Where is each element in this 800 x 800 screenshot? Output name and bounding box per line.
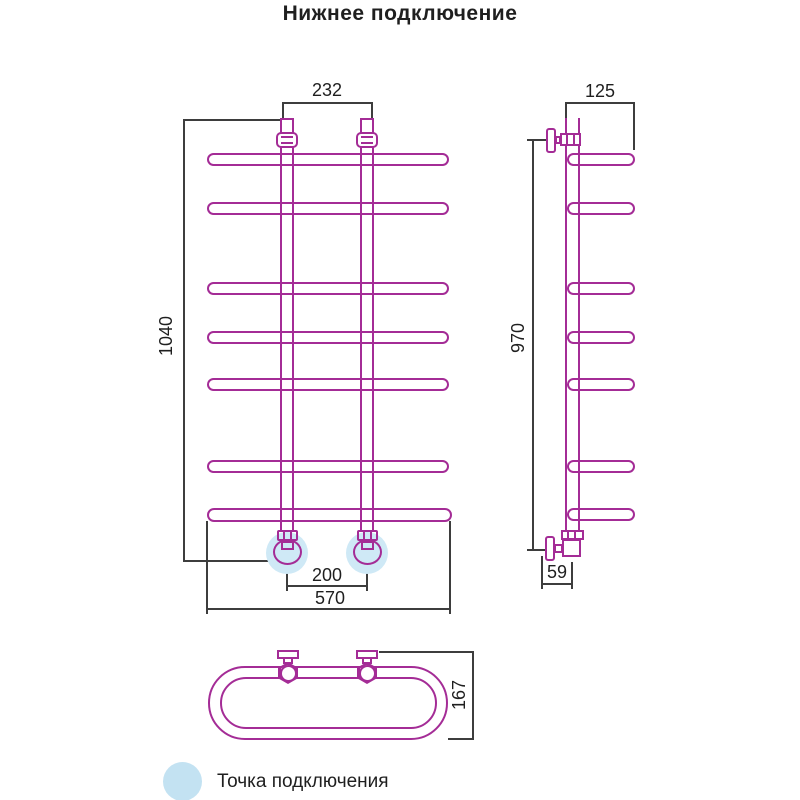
front-pipe-left — [292, 147, 294, 531]
dim-59-line — [541, 583, 573, 585]
dim-970-ext-top — [527, 139, 547, 141]
side-pipe — [578, 118, 580, 531]
front-valve-nut-right-face — [363, 532, 365, 539]
front-bar-bottom — [207, 508, 452, 522]
side-top-valve-nut — [560, 133, 581, 146]
front-bar — [207, 202, 449, 215]
side-bottom-valve-nut-face — [574, 532, 576, 538]
dim-570-ext-right — [449, 521, 451, 614]
dim-200-line — [287, 585, 367, 587]
side-bottom-valve-body — [562, 539, 581, 557]
front-valve-nut-left-face — [290, 532, 292, 539]
front-valve-ball-right-detail — [361, 541, 374, 550]
drawing-title: Нижнее подключение — [0, 2, 800, 26]
dim-1040-ext-top — [183, 119, 283, 121]
front-bar — [207, 282, 449, 295]
dim-167-label: 167 — [450, 678, 468, 712]
connection-point-marker — [163, 762, 202, 800]
dim-970-label: 970 — [509, 321, 527, 355]
dim-125-ext-right — [633, 102, 635, 150]
front-top-fitting-left-detail — [281, 136, 293, 144]
side-top-valve-nut-face — [566, 135, 568, 144]
dim-570-label: 570 — [313, 589, 347, 607]
dim-200-label: 200 — [310, 566, 344, 584]
front-bar — [207, 378, 449, 391]
front-bar — [207, 460, 449, 473]
dim-232-label: 232 — [310, 81, 344, 99]
dim-1040-line — [183, 120, 185, 562]
dim-125-line — [566, 102, 635, 104]
front-top-fitting-right-detail — [361, 136, 373, 144]
dim-970-line — [532, 139, 534, 551]
dim-570-ext-left — [206, 521, 208, 614]
side-bottom-valve-nut-face — [567, 532, 569, 538]
dim-232-line — [282, 102, 373, 104]
legend-label: Точка подключения — [217, 771, 389, 793]
front-pipe-right — [372, 147, 374, 531]
dim-570-line — [207, 608, 451, 610]
front-bar — [207, 153, 449, 166]
front-valve-nut-left-face — [283, 532, 285, 539]
side-bottom-valve-flange — [545, 536, 555, 561]
side-top-valve-flange — [546, 128, 556, 153]
side-pipe — [565, 118, 567, 531]
dim-1040-label: 1040 — [157, 314, 175, 358]
top-view-fitting-ball-left — [280, 665, 297, 682]
dim-59-label: 59 — [545, 563, 569, 581]
top-view-ring-inner — [220, 677, 437, 729]
dim-167-line — [472, 651, 474, 740]
side-bottom-valve-stem — [554, 544, 563, 553]
top-view-fitting-ball-right — [359, 665, 376, 682]
dim-125-ext-left — [565, 102, 567, 118]
front-bar — [207, 331, 449, 344]
drawing-canvas: Нижнее подключение 232 1040 200 570 — [0, 0, 800, 800]
front-valve-ball-left-detail — [281, 541, 294, 550]
dim-970-ext-bottom — [527, 549, 547, 551]
dim-167-ext-top — [379, 651, 474, 653]
dim-167-ext-bottom — [448, 738, 474, 740]
front-valve-nut-right-face — [370, 532, 372, 539]
front-pipe-left — [280, 147, 282, 531]
front-pipe-right — [360, 147, 362, 531]
dim-125-label: 125 — [583, 82, 617, 100]
side-top-valve-nut-face — [573, 135, 575, 144]
